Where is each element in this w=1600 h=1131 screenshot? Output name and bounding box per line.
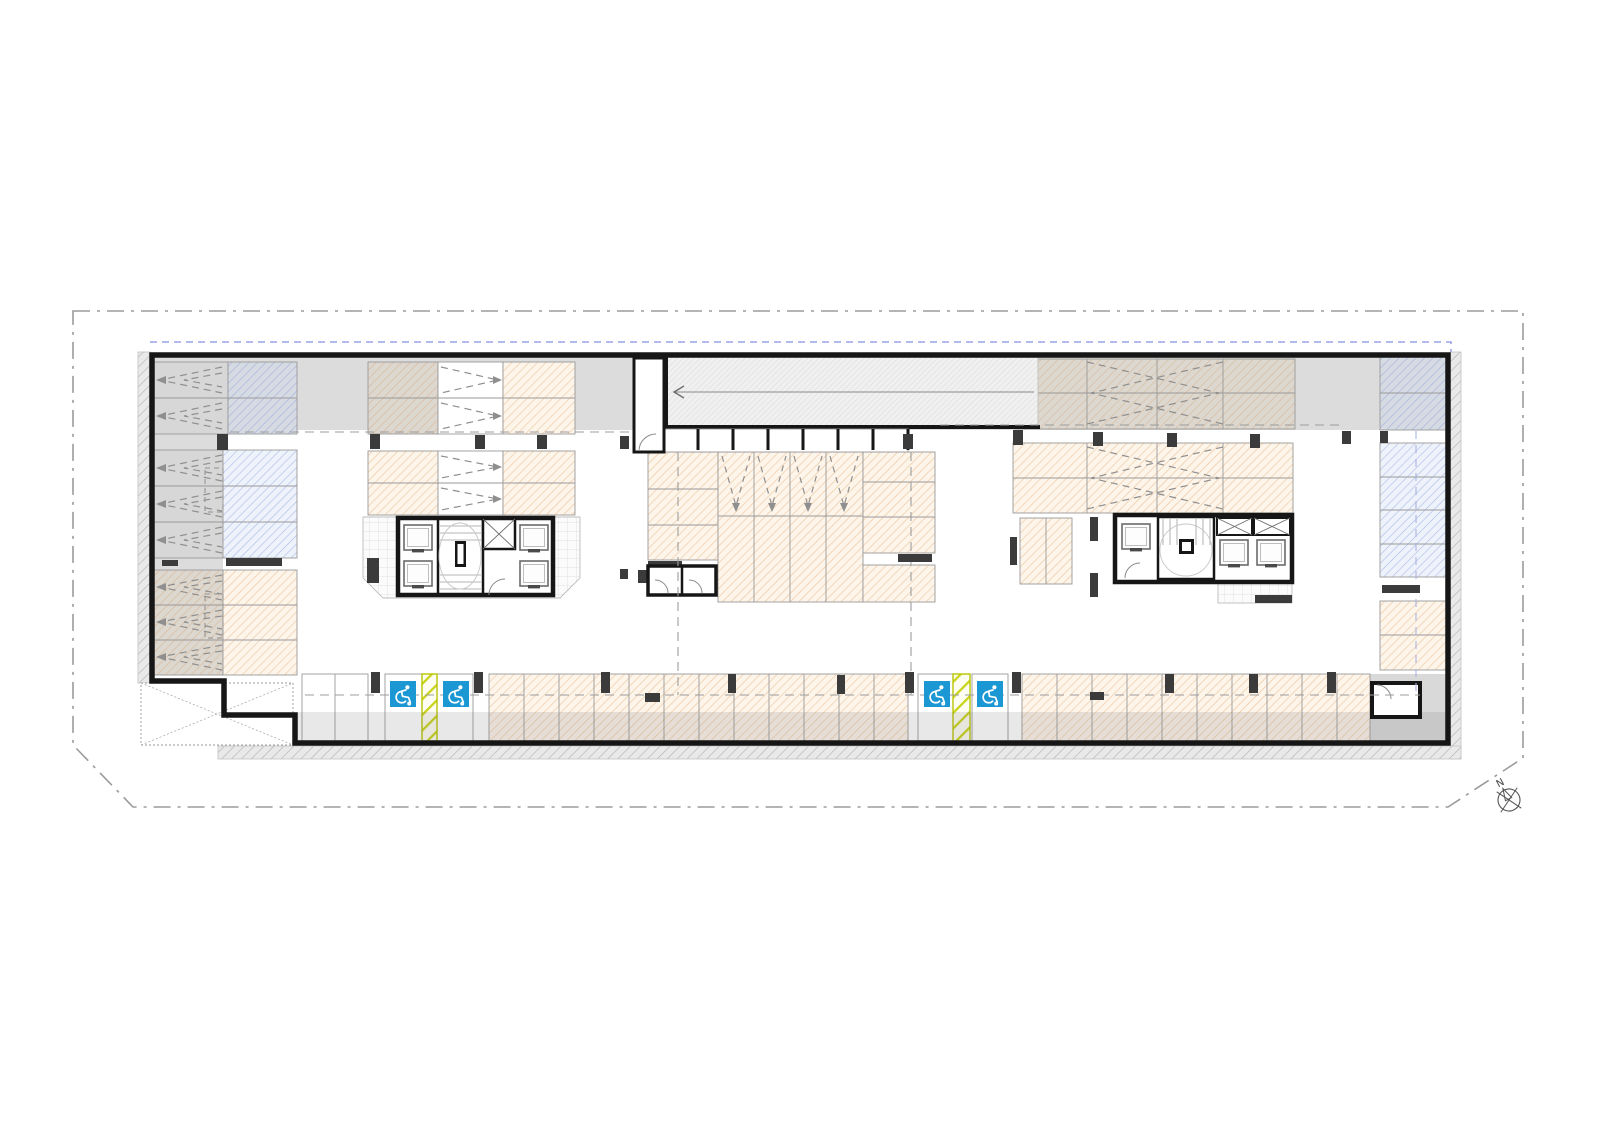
parking-group-mid-second [368,451,575,515]
floor-plan-canvas: N [0,0,1600,1131]
wall-pier [367,558,379,583]
stair-core-right [1115,515,1292,603]
accessible-parking-sign [443,681,469,707]
stair-core-left [363,517,580,598]
corner-room [1372,683,1420,717]
wc-room [638,561,716,595]
accessible-parking-sign [390,681,416,707]
service-shaft [483,519,515,549]
parking-pair-right-core [1020,518,1072,584]
overhang-shadow-band [154,712,1446,743]
parking-group-left-top [154,362,297,434]
ramp-side-room [634,358,664,452]
parking-column-right-edge [1380,357,1447,670]
storage-room-row [663,429,908,452]
ramp [663,357,1040,427]
accessible-parking-sign [924,681,950,707]
parking-group-left-bottom [154,570,297,675]
accessible-parking-sign [977,681,1003,707]
stairwell [438,519,483,594]
parking-group-right-top [1015,359,1295,429]
parking-group-right-second [1013,443,1293,513]
stairwell [1158,517,1214,579]
north-label: N [1495,777,1507,790]
compass-icon: N [1486,773,1526,818]
parking-group-mid-top [368,362,575,434]
parking-group-left-middle [154,450,297,558]
service-shaft [1217,518,1290,535]
